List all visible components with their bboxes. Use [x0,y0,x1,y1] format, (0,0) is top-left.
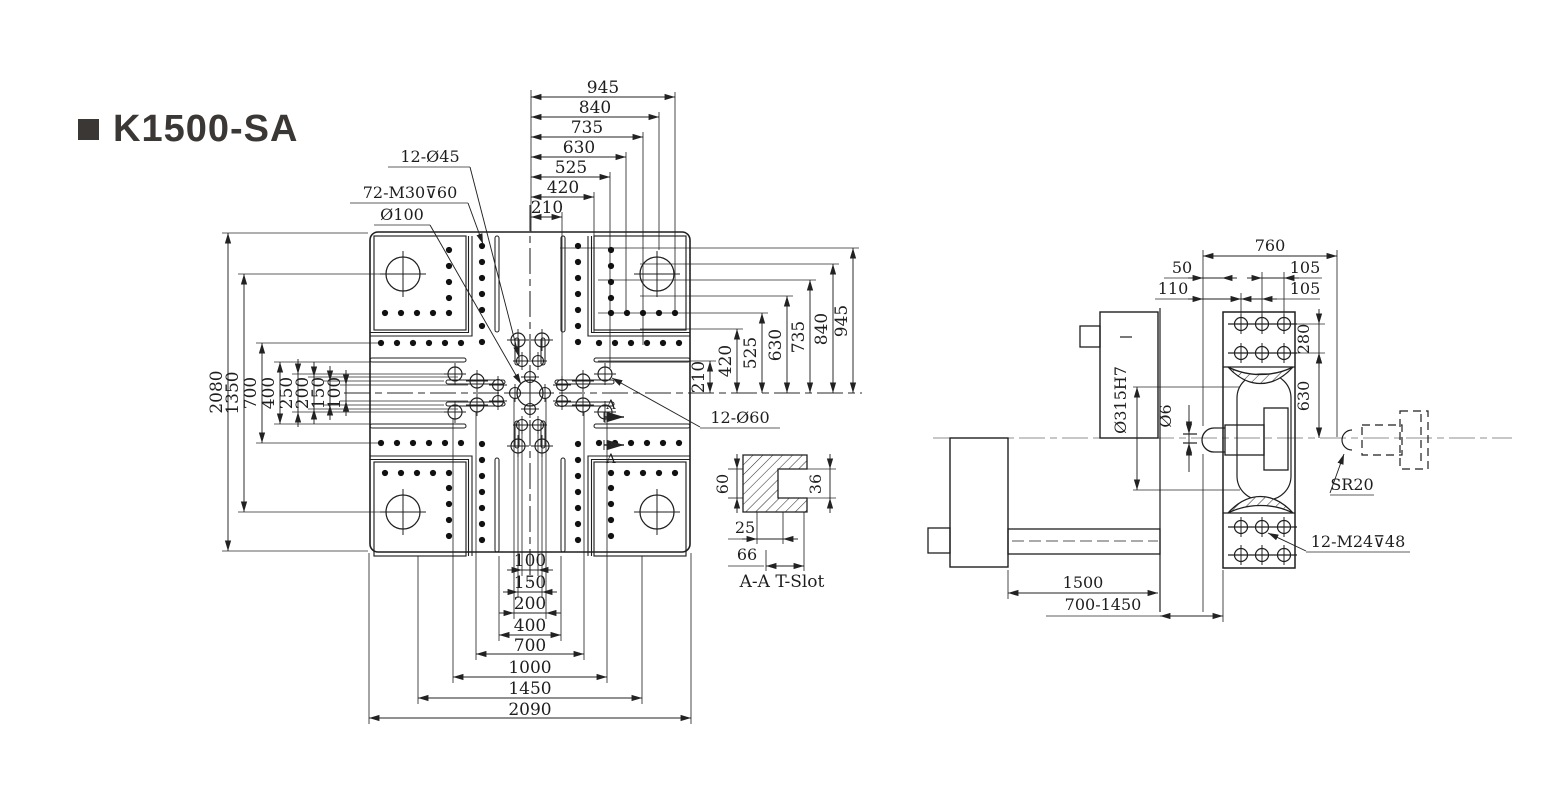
dim-630-right: 630 [766,329,786,361]
dim-525-top: 525 [555,158,587,178]
dim-400-bottom: 400 [514,616,546,636]
section-mark-a-bottom: A [605,452,616,467]
dim-210-top: 210 [531,198,563,218]
dim-50: 50 [1172,258,1192,277]
tslot-caption: A-A T-Slot [739,572,825,592]
dim-2090-bottom: 2090 [508,700,551,720]
title-block: K1500-SA [78,108,298,151]
dim-1500: 1500 [1063,573,1104,592]
dim-orifice: Ø6 [1156,404,1175,427]
dim-735-right: 735 [789,321,809,353]
dim-105-bottom: 105 [1290,279,1321,298]
dim-760: 760 [1255,236,1286,255]
callout-center-bore: Ø100 [380,205,424,224]
dim-1350-left: 1350 [223,371,243,414]
dim-100-bottom: 100 [514,551,546,571]
dim-945-right: 945 [832,305,852,337]
dim-400-left: 400 [259,377,279,409]
section-mark-a-top: A [605,398,616,413]
dim-630-top: 630 [563,138,595,158]
dim-420-right: 420 [716,345,736,377]
dim-840-right: 840 [812,313,832,345]
dim-210-right: 210 [689,361,709,393]
dim-150-bottom: 150 [514,573,546,593]
drawing-canvas: K1500-SA 9458407356305254202102080135070… [0,0,1560,794]
dim-200-bottom: 200 [514,594,546,614]
dim-420-top: 420 [547,178,579,198]
dim-735-top: 735 [571,118,603,138]
tslot-dim-36: 36 [806,474,825,494]
callout-tapped-m30: 72-M30⊽60 [363,183,458,202]
dim-105-top: 105 [1290,258,1321,277]
dim-525-right: 525 [741,337,761,369]
dim-1000-bottom: 1000 [508,658,551,678]
dim-945-top: 945 [587,78,619,98]
dim-1450-bottom: 1450 [508,679,551,699]
callout-tapped-m24: 12-M24⊽48 [1311,532,1406,551]
dim-locating-bore: Ø315H7 [1111,366,1130,434]
callout-holes-45: 12-Ø45 [400,147,459,166]
dim-100-left: 100 [325,377,345,409]
dim-280: 280 [1294,324,1313,355]
dim-mold-height: 700-1450 [1065,595,1142,614]
dim-110: 110 [1158,279,1189,298]
dim-700-left: 700 [241,377,261,409]
dim-700-bottom: 700 [514,636,546,656]
page-title: K1500-SA [113,108,298,151]
callout-holes-60: 12-Ø60 [710,408,769,427]
dimension-texts: 9458407356305254202102080135070040025020… [207,78,1405,720]
dim-630-side: 630 [1294,381,1313,412]
tslot-dim-60: 60 [713,474,732,494]
tslot-dim-66: 66 [737,545,757,564]
title-bullet-icon [78,119,99,140]
dim-840-top: 840 [579,98,611,118]
tslot-dim-25: 25 [735,518,755,537]
callout-sr20: SR20 [1330,475,1373,494]
